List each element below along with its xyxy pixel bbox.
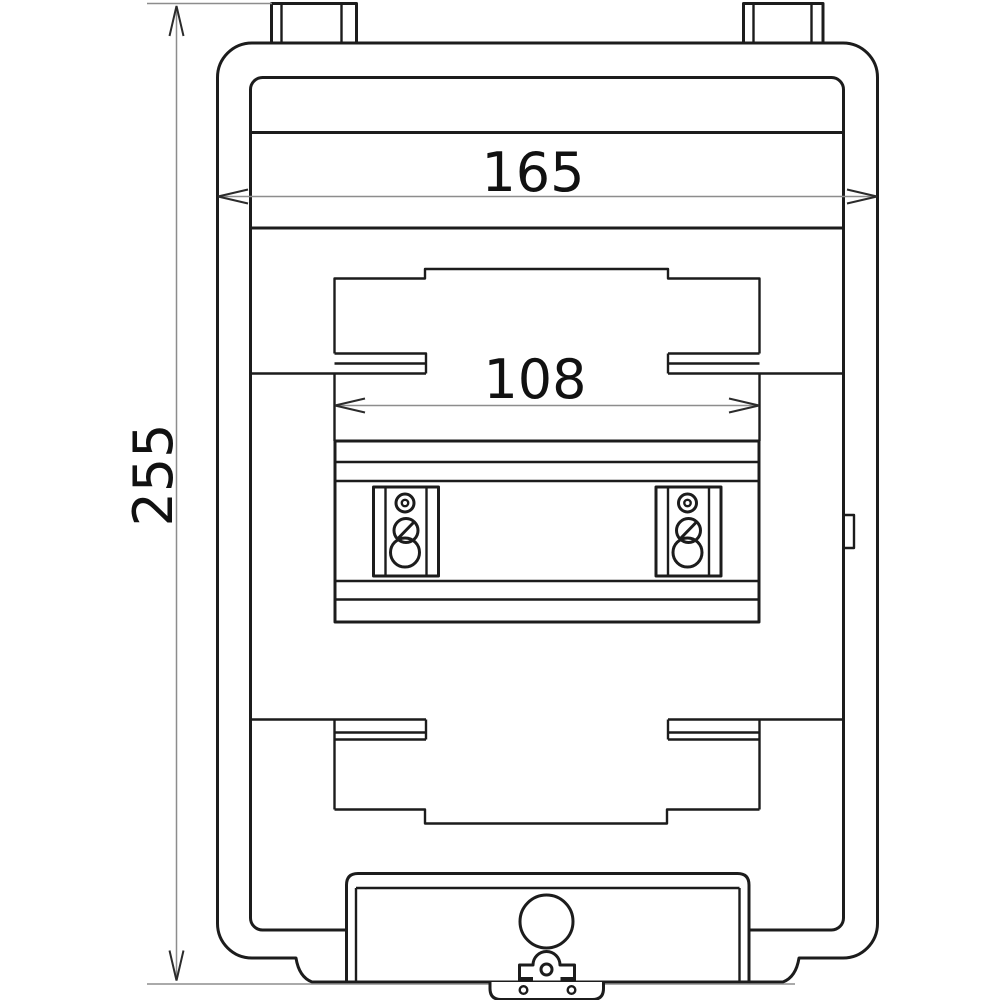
dimension-width-165: 165: [218, 141, 877, 204]
din-clip-right-pin: [679, 494, 697, 512]
din-rail-edge-lines: [335, 462, 759, 600]
upper-cutout-platform: [335, 269, 760, 354]
mounting-tab-top-left: [272, 4, 357, 44]
dim-label-165: 165: [481, 141, 584, 204]
enclosure-cover: [251, 78, 855, 931]
upper-cutout-tab-right: [668, 354, 842, 374]
latch-slot-right: [561, 977, 575, 983]
lower-cutout: [252, 720, 842, 824]
bottom-flange: [347, 874, 750, 983]
mounting-tab-top-left-slots: [282, 4, 342, 44]
din-clip-left: [374, 487, 439, 576]
bottom-bracket: [490, 982, 604, 1000]
din-clip-left-pin-hole: [402, 500, 408, 506]
lower-cutout-tab-left: [252, 720, 426, 740]
upper-cutout-tab-left: [252, 354, 426, 374]
dimension-height-255: 255: [122, 4, 795, 985]
lower-cutout-floor: [335, 810, 760, 824]
din-rail-outline: [335, 441, 759, 622]
dim-label-255: 255: [122, 423, 185, 526]
dimension-width-108: 108: [335, 348, 759, 413]
cover-side-latch: [844, 515, 855, 548]
din-clip-right-pin-hole: [684, 500, 690, 506]
mounting-tab-top-right-slots: [754, 4, 812, 44]
din-rail: [335, 441, 759, 622]
dim-label-108: 108: [483, 348, 586, 411]
latch-slot-left: [520, 977, 534, 983]
flange-outline: [347, 874, 750, 983]
technical-drawing: 255 165 108: [0, 0, 1000, 1000]
cover-outline: [251, 78, 844, 931]
din-clip-right: [656, 487, 721, 576]
bottom-bracket-outline: [490, 982, 604, 1000]
din-clip-left-pin: [396, 494, 414, 512]
drawing-page: 255 165 108: [0, 0, 1000, 1000]
lower-cutout-tab-right: [668, 720, 842, 740]
